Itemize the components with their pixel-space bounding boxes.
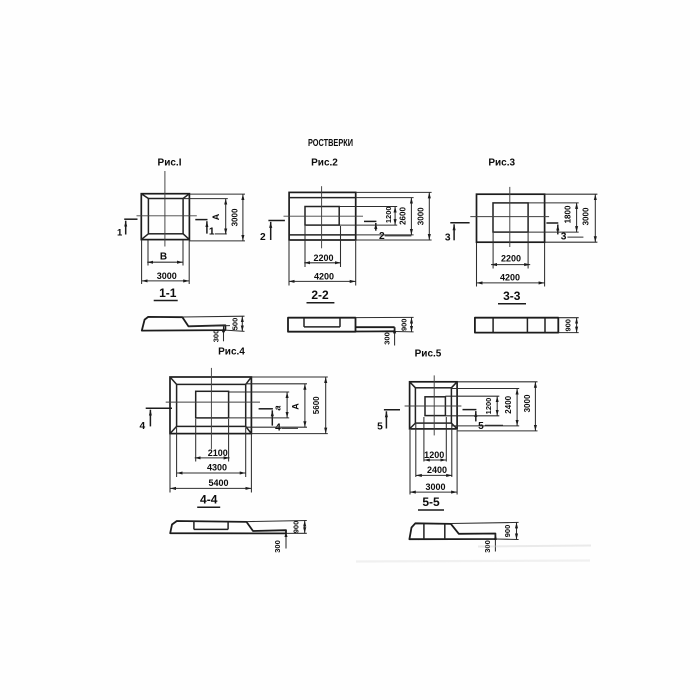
svg-text:2600: 2600 <box>398 207 407 225</box>
svg-text:3000: 3000 <box>523 394 532 412</box>
svg-text:1200: 1200 <box>384 206 393 223</box>
svg-text:2400: 2400 <box>504 395 513 413</box>
svg-text:Рис.5: Рис.5 <box>415 349 442 360</box>
svg-text:3000: 3000 <box>582 207 591 225</box>
svg-text:4-4: 4-4 <box>200 493 218 507</box>
svg-text:3-3: 3-3 <box>503 289 521 303</box>
svg-text:5-5: 5-5 <box>422 495 440 509</box>
svg-text:A: A <box>290 403 300 410</box>
svg-text:4: 4 <box>275 423 281 434</box>
svg-text:900: 900 <box>563 319 572 332</box>
svg-text:4: 4 <box>139 421 145 432</box>
svg-text:4300: 4300 <box>207 463 227 473</box>
svg-text:4200: 4200 <box>500 273 520 283</box>
svg-text:Рис.4: Рис.4 <box>218 347 245 358</box>
svg-text:2100: 2100 <box>208 448 228 458</box>
svg-text:РОСТВЕРКИ: РОСТВЕРКИ <box>308 138 353 149</box>
svg-text:1200: 1200 <box>424 450 444 460</box>
svg-text:4200: 4200 <box>314 272 334 282</box>
svg-text:2400: 2400 <box>427 465 447 475</box>
svg-text:3000: 3000 <box>417 207 426 225</box>
svg-text:500: 500 <box>230 318 239 331</box>
svg-text:3000: 3000 <box>231 208 240 226</box>
svg-text:3000: 3000 <box>425 482 445 492</box>
svg-text:1: 1 <box>209 226 215 237</box>
svg-text:900: 900 <box>292 521 301 534</box>
svg-text:B: B <box>160 252 167 263</box>
svg-text:2200: 2200 <box>501 254 521 264</box>
svg-text:5: 5 <box>377 421 383 432</box>
svg-text:a: a <box>273 405 283 410</box>
svg-text:Рис.3: Рис.3 <box>488 158 515 169</box>
svg-text:900: 900 <box>399 319 408 332</box>
svg-text:3: 3 <box>561 232 567 243</box>
svg-text:300: 300 <box>212 330 221 343</box>
svg-text:A: A <box>211 213 221 220</box>
svg-text:1800: 1800 <box>563 205 572 223</box>
svg-text:Рис.2: Рис.2 <box>311 158 338 169</box>
svg-text:5: 5 <box>478 421 484 432</box>
svg-text:1: 1 <box>117 228 123 239</box>
svg-text:300: 300 <box>273 540 282 553</box>
svg-text:Рис.I: Рис.I <box>158 158 182 169</box>
svg-text:3000: 3000 <box>157 271 177 281</box>
svg-text:1-1: 1-1 <box>159 286 177 300</box>
svg-text:1200: 1200 <box>484 398 493 415</box>
svg-text:5600: 5600 <box>312 396 321 414</box>
svg-text:900: 900 <box>503 525 512 538</box>
svg-text:3: 3 <box>445 232 451 243</box>
svg-text:2200: 2200 <box>313 253 333 263</box>
svg-text:300: 300 <box>383 332 392 345</box>
svg-text:2-2: 2-2 <box>311 288 329 302</box>
svg-text:5400: 5400 <box>208 478 228 488</box>
svg-text:2: 2 <box>260 232 266 243</box>
